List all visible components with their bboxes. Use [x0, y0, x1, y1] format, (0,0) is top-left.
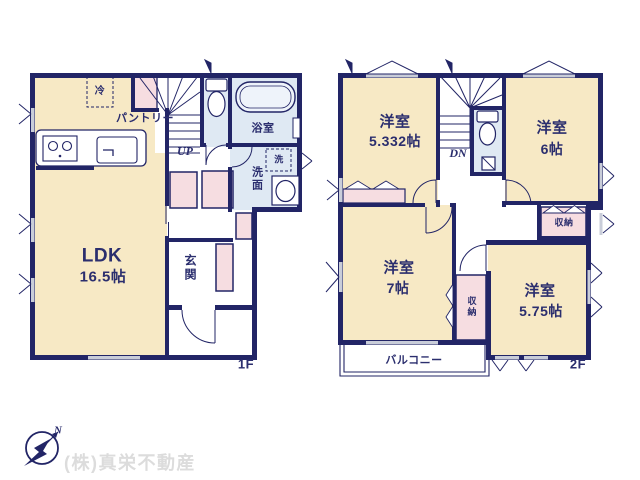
label-fridge: 冷	[95, 87, 106, 97]
window-awning-marks	[366, 61, 575, 74]
label-bath: 浴室	[252, 124, 275, 135]
label-stairs-up: UP	[177, 145, 193, 157]
kitchen-counter-icon	[36, 130, 146, 170]
room-size-ne: 6帖	[541, 142, 564, 156]
floorplan-canvas: LDK 16.5帖 パントリー 冷 UP 浴室 洗 洗面 玄関 1F 洋室 5.…	[0, 0, 640, 480]
room-size-ldk: 16.5帖	[80, 270, 127, 285]
label-entrance: 玄関	[184, 254, 196, 282]
label-closet-ne: 収納	[554, 219, 573, 228]
floorplan-drawing	[0, 0, 640, 480]
room-label-ldk: LDK	[82, 247, 123, 266]
room-size-se: 5.75帖	[519, 304, 563, 318]
company-name: (株)真栄不動産	[64, 449, 196, 475]
label-balcony: バルコニー	[385, 356, 442, 367]
pantry-area	[133, 76, 157, 109]
floor1-plan	[19, 60, 312, 360]
label-closet-mid: 収納	[467, 296, 476, 318]
label-pantry: パントリー	[116, 114, 174, 125]
floor1-label: 1F	[238, 358, 254, 371]
closet-hall-west	[170, 172, 197, 208]
room-label-ne: 洋室	[536, 121, 567, 136]
label-washroom: 洗面	[251, 166, 262, 192]
shoe-cabinet	[216, 244, 233, 291]
bedroom-se	[488, 243, 588, 357]
vanity-sink-icon	[272, 176, 299, 205]
compass-north-label: N	[54, 426, 62, 437]
room-size-sw: 7帖	[387, 281, 410, 295]
room-label-se: 洋室	[524, 284, 555, 299]
toilet-icon-1f	[206, 79, 227, 117]
room-label-sw: 洋室	[383, 261, 414, 276]
room-label-nw: 洋室	[379, 115, 410, 130]
room-size-nw: 5.332帖	[369, 134, 421, 148]
label-washer: 洗	[274, 156, 284, 165]
closet-nw	[343, 189, 405, 203]
floor2-label: 2F	[570, 358, 586, 371]
label-stairs-down: DN	[449, 147, 466, 159]
storage-entry-side	[236, 213, 252, 239]
compass-icon	[24, 432, 58, 466]
